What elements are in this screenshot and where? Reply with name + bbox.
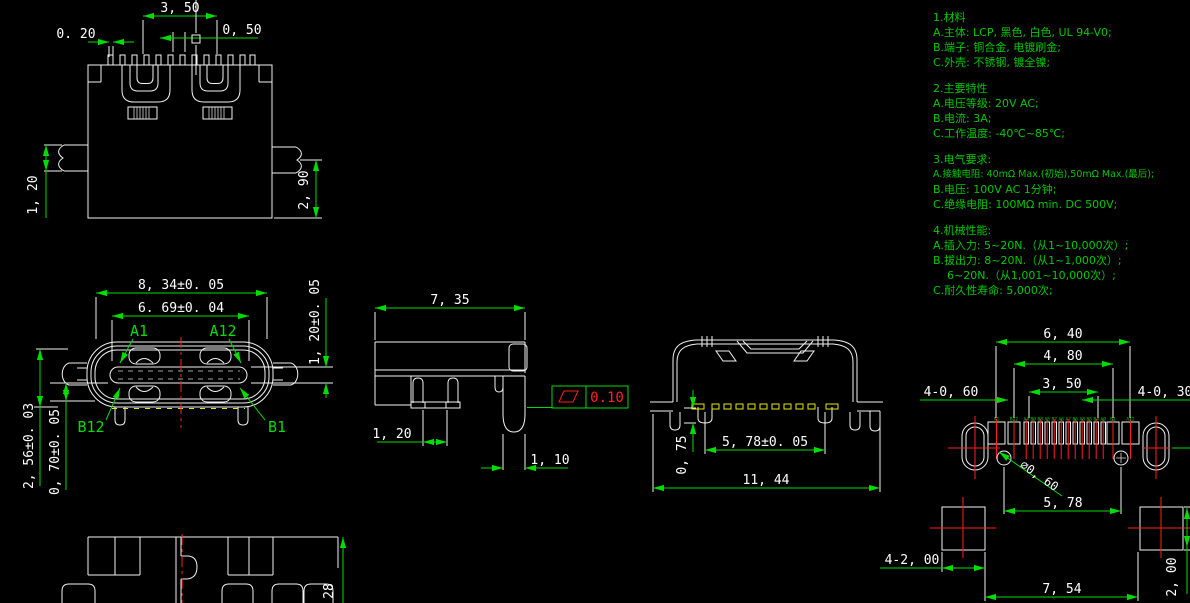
flatness-symbol-icon (559, 391, 578, 402)
note-item: A.主体: LCP, 黑色, 白色, UL 94-V0; (933, 25, 1189, 40)
note-title: 3.电气要求: (933, 152, 1189, 167)
dim-rear-leg-height: 0, 75 (675, 435, 690, 474)
dim-front-pin-span: 3, 50 (160, 1, 199, 16)
dim-second-span: 4, 80 (1043, 349, 1082, 364)
dim-rear-total-width: 11, 44 (743, 473, 790, 488)
svg-text:A12: A12 (1126, 417, 1134, 423)
dim-total-height: 2, 56±0. 03 (22, 403, 37, 489)
dim-hole-span: 5, 78 (1043, 496, 1082, 511)
svg-text:A8: A8 (1079, 417, 1085, 423)
dim-inner-span: 3, 50 (1042, 377, 1081, 392)
note-title: 4.机械性能: (933, 223, 1189, 238)
gdt-flatness-frame: 0.10 (552, 386, 628, 408)
dim-front-body-height: 2, 90 (297, 170, 312, 209)
svg-text:B6: B6 (1072, 417, 1078, 423)
note-item: 6~20N.（从1,001~10,000次）; (933, 268, 1189, 283)
cad-viewport[interactable]: 3, 50 0. 20 0, 50 1, 20 2, 90 (0, 0, 1190, 603)
dim-front-tab-height: 1, 20 (26, 175, 41, 214)
note-title: 1.材料 (933, 10, 1189, 25)
dim-standoff: 0, 70±0. 05 (48, 409, 63, 495)
pad-labels: A1 B12 A4 B9 B8 A5 B7 A6 A7 B6 A8 B5 B4 … (994, 417, 1135, 423)
dim-depth: 7, 35 (430, 293, 469, 308)
svg-text:B8: B8 (1037, 417, 1043, 423)
dim-peg-width: 1, 10 (530, 453, 569, 468)
svg-text:A6: A6 (1058, 417, 1064, 423)
pin-label-b12: B12 (77, 418, 104, 436)
note-item: C.耐久性寿命: 5,000次; (933, 283, 1189, 298)
dim-square-size: 4-2, 00 (885, 553, 940, 568)
svg-text:A4: A4 (1023, 417, 1029, 423)
svg-text:A7: A7 (1065, 417, 1071, 423)
pad-row (988, 422, 1139, 444)
note-item: A.插入力: 5~20N.（从1~10,000次）; (933, 238, 1189, 253)
side-view: 0.10 7, 35 1, 20 1, 10 (372, 293, 628, 470)
dim-pad-right: 4-0, 30 (1138, 385, 1190, 400)
note-item: B.端子: 铜合金, 电镀刷金; (933, 40, 1189, 55)
dim-tongue-thickness: 1, 20±0. 05 (308, 279, 323, 365)
dim-outer-span: 6, 40 (1043, 327, 1082, 342)
dim-front-pin-width: 0. 20 (56, 27, 95, 42)
note-item: C.工作温度: -40℃~85℃; (933, 126, 1189, 141)
dim-hole-dia: ⌀0, 60 (1018, 458, 1062, 494)
svg-text:B5: B5 (1086, 417, 1092, 423)
dim-tongue-width: 6. 69±0. 04 (138, 301, 224, 316)
dim-leg-gap: 1, 20 (372, 427, 411, 442)
note-mechanical: 4.机械性能: A.插入力: 5~20N.（从1~10,000次）; B.拔出力… (933, 223, 1189, 298)
svg-text:A1: A1 (994, 417, 1000, 423)
dim-partial-height: 28 (322, 583, 337, 599)
technical-notes: 1.材料 A.主体: LCP, 黑色, 白色, UL 94-V0; B.端子: … (933, 10, 1189, 309)
note-item: C.外壳: 不锈钢, 镀全镍; (933, 55, 1189, 70)
rear-pin-row (692, 404, 838, 409)
mating-face-view: A1 A12 B12 B1 8, 34±0. 05 6. 69±0. 04 1,… (22, 278, 333, 495)
note-item: B.电压: 100V AC 1分钟; (933, 182, 1189, 197)
rear-view: 0, 75 5, 78±0. 05 11, 44 (650, 336, 883, 492)
dim-shell-width: 8, 34±0. 05 (138, 278, 224, 293)
dim-pad-left: 4-0, 60 (924, 385, 979, 400)
note-title: 2.主要特性 (933, 81, 1189, 96)
front-view: 3, 50 0. 20 0, 50 1, 20 2, 90 (26, 0, 322, 218)
pin-label-b1: B1 (268, 418, 286, 436)
note-materials: 1.材料 A.主体: LCP, 黑色, 白色, UL 94-V0; B.端子: … (933, 10, 1189, 70)
pin-label-a12: A12 (209, 322, 236, 340)
note-item: C.绝缘电阻: 100MΩ min. DC 500V; (933, 197, 1189, 212)
partial-top-view: 28 (62, 534, 343, 603)
note-item: B.拔出力: 8~20N.（从1~1,000次）; (933, 253, 1189, 268)
svg-text:B9: B9 (1030, 417, 1036, 423)
dim-square-height: 2, 00 (1165, 557, 1180, 596)
gdt-flatness-value: 0.10 (590, 390, 624, 406)
note-item: A.电压等级: 20V AC; (933, 96, 1189, 111)
note-electrical: 3.电气要求: A.接触电阻: 40mΩ Max.(初始),50mΩ Max.(… (933, 152, 1189, 212)
note-item: B.电流: 3A; (933, 111, 1189, 126)
dim-rear-leg-span: 5, 78±0. 05 (722, 435, 808, 450)
svg-text:B7: B7 (1051, 417, 1057, 423)
note-item: A.接触电阻: 40mΩ Max.(初始),50mΩ Max.(最后); (933, 167, 1189, 182)
pin-label-a1: A1 (130, 322, 148, 340)
note-characteristics: 2.主要特性 A.电压等级: 20V AC; B.电流: 3A; C.工作温度:… (933, 81, 1189, 141)
dim-front-pin-offset: 0, 50 (222, 23, 261, 38)
svg-text:A9: A9 (1100, 417, 1106, 423)
dim-square-span: 7, 54 (1042, 582, 1081, 597)
footprint-view: A1 B12 A4 B9 B8 A5 B7 A6 A7 B6 A8 B5 B4 … (880, 327, 1190, 601)
svg-text:A5: A5 (1044, 417, 1050, 423)
